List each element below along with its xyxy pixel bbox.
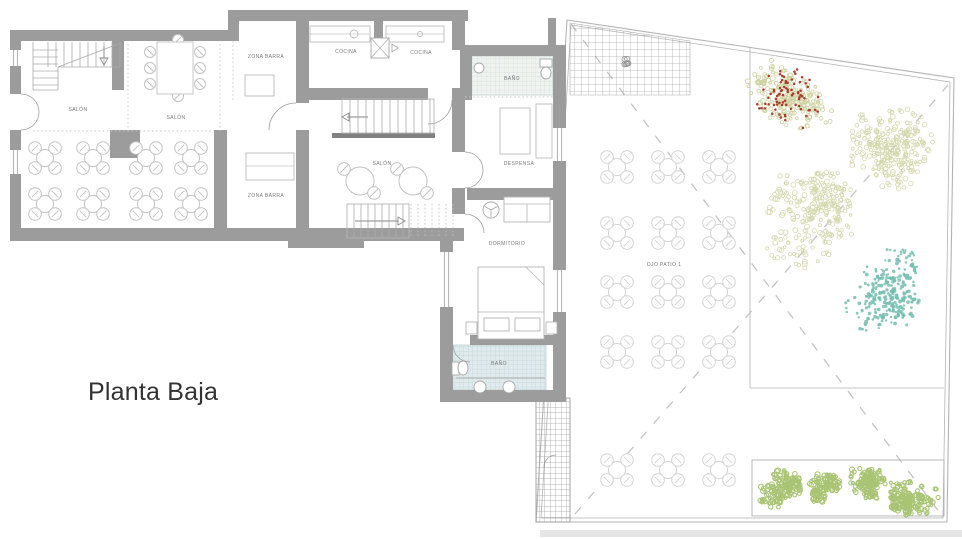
foliage-stroke: [753, 73, 757, 77]
bush-stroke: [923, 500, 926, 503]
teal-foliage-dot: [867, 284, 870, 287]
teal-foliage-dot: [909, 312, 913, 316]
red-blossom-dot: [764, 107, 767, 110]
bush-stroke: [793, 472, 798, 477]
foliage-stroke: [860, 152, 865, 157]
teal-foliage-dot: [871, 300, 873, 302]
red-blossom-dot: [782, 101, 785, 104]
foliage-stroke: [789, 252, 792, 255]
foliage-stroke: [926, 148, 931, 153]
red-blossom-dot: [779, 73, 782, 76]
bush-stroke: [769, 505, 773, 509]
teal-foliage-dot: [897, 255, 900, 258]
teal-foliage-dot: [886, 248, 889, 251]
window-opening: [553, 270, 566, 312]
foliage-stroke: [772, 71, 775, 74]
teal-foliage-dot: [902, 248, 905, 251]
red-blossom-dot: [773, 89, 776, 92]
teal-foliage-dot: [887, 273, 889, 275]
wall: [548, 18, 556, 46]
foliage-stroke: [905, 121, 909, 125]
door-opening: [10, 94, 21, 130]
teal-foliage-dot: [890, 321, 892, 323]
foliage-stroke: [793, 228, 798, 233]
teal-foliage-dot: [898, 308, 901, 311]
red-blossom-dot: [784, 114, 787, 117]
teal-foliage-dot: [887, 281, 889, 283]
patio-table-4-chairs: [652, 276, 685, 309]
foliage-stroke: [797, 246, 801, 250]
foliage-stroke: [784, 123, 788, 127]
window-opening: [553, 128, 566, 161]
teal-foliage-dot: [873, 278, 876, 281]
foliage-stroke: [769, 107, 773, 111]
red-blossom-dot: [785, 104, 788, 107]
red-blossom-dot: [799, 94, 802, 97]
floor-plan-page: SALÓNSALÓNZONA BARRAZONA BARRACOCINACOCI…: [0, 0, 962, 539]
teal-foliage-dot: [896, 276, 898, 278]
foliage-stroke: [806, 209, 809, 212]
teal-foliage-dot: [890, 297, 894, 301]
foliage-stroke: [785, 174, 789, 178]
counter: [500, 108, 530, 154]
teal-foliage-dot: [874, 308, 877, 311]
teal-foliage-dot: [874, 293, 877, 296]
teal-foliage-dot: [883, 283, 886, 286]
bottom-edge-band: [540, 530, 962, 537]
foliage-stroke: [850, 129, 855, 134]
red-blossom-dot: [805, 115, 808, 118]
teal-foliage-dot: [877, 323, 880, 326]
red-blossom-dot: [758, 107, 761, 110]
teal-foliage-dot: [881, 268, 883, 270]
teal-foliage-dot: [917, 299, 921, 303]
red-blossom-dot: [784, 100, 787, 103]
foliage-stroke: [781, 194, 784, 197]
teal-foliage-dot: [896, 297, 899, 300]
teal-foliage-dot: [907, 289, 910, 292]
tree-ring: [766, 170, 854, 270]
foliage-stroke: [808, 181, 811, 184]
red-blossom-dot: [807, 86, 810, 89]
wall: [374, 10, 383, 41]
teal-foliage-dot: [865, 306, 868, 309]
wall: [440, 390, 566, 402]
foliage-stroke: [860, 130, 864, 134]
foliage-stroke: [792, 195, 796, 199]
nightstand: [466, 322, 477, 334]
pillow: [484, 318, 509, 331]
teal-foliage-dot: [885, 319, 887, 321]
teal-foliage-dot: [865, 329, 868, 332]
wall: [460, 45, 566, 56]
teal-foliage-dot: [880, 274, 882, 276]
foliage-stroke: [782, 256, 786, 260]
teal-foliage-dot: [879, 284, 883, 288]
teal-foliage-dot: [912, 298, 916, 302]
foliage-stroke: [821, 251, 826, 256]
teal-foliage-dot: [857, 302, 861, 306]
foliage-stroke: [909, 181, 914, 186]
foliage-stroke: [912, 146, 915, 149]
foliage-stroke: [801, 239, 804, 242]
foliage-stroke: [881, 133, 884, 136]
planter-bush: [889, 480, 940, 517]
foliage-stroke: [804, 181, 808, 185]
red-blossom-dot: [816, 110, 819, 113]
red-blossom-dot: [808, 79, 811, 82]
foliage-stroke: [784, 236, 787, 239]
teal-foliage-dot: [885, 276, 888, 279]
foliage-stroke: [830, 207, 834, 211]
foliage-stroke: [792, 190, 797, 195]
foliage-stroke: [815, 98, 818, 101]
foliage-stroke: [795, 214, 799, 218]
red-blossom-dot: [797, 92, 800, 95]
counter: [245, 75, 274, 96]
pillow: [515, 318, 540, 331]
teal-foliage-dot: [858, 316, 860, 318]
teal-foliage-dot: [874, 268, 877, 271]
patio-table-4-chairs: [601, 276, 634, 309]
foliage-stroke: [896, 121, 900, 125]
teal-foliage-dot: [845, 307, 848, 310]
foliage-stroke: [862, 157, 866, 161]
teal-foliage-dot: [900, 253, 902, 255]
room-label: DESPENSA: [504, 161, 535, 167]
teal-foliage-dot: [891, 280, 894, 283]
room-label: COCINA: [410, 50, 432, 56]
red-blossom-dot: [799, 89, 802, 92]
teal-foliage-dot: [864, 322, 868, 326]
foliage-stroke: [802, 207, 806, 211]
teal-foliage-dot: [885, 295, 888, 298]
red-blossom-dot: [778, 102, 781, 105]
room-label: SALÓN: [167, 114, 186, 121]
foliage-stroke: [816, 260, 819, 263]
counter: [246, 153, 294, 180]
teal-foliage-dot: [900, 250, 903, 253]
bush-stroke: [777, 505, 781, 509]
bush-stroke: [850, 472, 854, 476]
plan-title: Planta Baja: [88, 378, 218, 407]
foliage-stroke: [759, 66, 762, 69]
foliage-stroke: [801, 220, 804, 223]
red-blossom-dot: [798, 96, 801, 99]
foliage-stroke: [779, 237, 783, 241]
teal-foliage-dot: [888, 301, 891, 304]
foliage-stroke: [880, 184, 885, 189]
red-blossom-dot: [781, 75, 784, 78]
teal-foliage-dot: [895, 258, 899, 262]
foliage-stroke: [891, 175, 896, 180]
teal-foliage-dot: [866, 265, 869, 268]
toilet-bowl: [541, 67, 551, 79]
sink: [503, 381, 515, 393]
foliage-stroke: [824, 179, 829, 184]
teal-foliage-dot: [903, 251, 906, 254]
foliage-stroke: [787, 241, 790, 244]
teal-foliage-dot: [867, 318, 870, 321]
foliage-stroke: [773, 257, 776, 260]
teal-foliage-dot: [898, 274, 902, 278]
wall: [10, 228, 295, 241]
foliage-stroke: [791, 183, 796, 188]
teal-foliage-dot: [892, 270, 895, 273]
teal-foliage-dot: [882, 313, 886, 317]
teal-foliage-dot: [905, 261, 907, 263]
teal-foliage-dot: [873, 315, 877, 319]
teal-foliage-dot: [878, 277, 881, 280]
red-blossom-dot: [778, 113, 781, 116]
red-blossom-dot: [780, 90, 783, 93]
teal-foliage-dot: [896, 306, 899, 309]
foliage-stroke: [783, 246, 786, 249]
teal-foliage-dot: [874, 311, 877, 314]
teal-foliage-dot: [877, 296, 880, 299]
foliage-stroke: [836, 172, 839, 175]
foliage-stroke: [830, 109, 834, 113]
teal-foliage-dot: [897, 278, 901, 282]
teal-foliage-dot: [847, 299, 850, 302]
red-blossom-dot: [775, 97, 778, 100]
teal-foliage-dot: [903, 273, 906, 276]
foliage-stroke: [902, 186, 905, 189]
teal-foliage-dot: [903, 283, 906, 286]
foliage-stroke: [812, 229, 816, 233]
room-label: BAÑO: [491, 360, 507, 367]
foliage-stroke: [831, 172, 834, 175]
teal-foliage-dot: [877, 308, 881, 312]
teal-foliage-dot: [886, 310, 888, 312]
wall: [214, 130, 227, 228]
teal-foliage-dot: [878, 327, 880, 329]
teal-foliage-dot: [886, 302, 888, 304]
teal-foliage-dot: [868, 302, 872, 306]
teal-foliage-dot: [844, 301, 847, 304]
foliage-stroke: [766, 247, 769, 250]
door-opening: [428, 88, 452, 100]
foliage-stroke: [785, 198, 789, 202]
foliage-stroke: [793, 219, 796, 222]
patio-table-4-chairs: [703, 454, 736, 487]
foliage-stroke: [770, 76, 775, 81]
red-blossom-dot: [796, 68, 799, 71]
wall: [452, 95, 465, 152]
red-blossom-dot: [767, 103, 770, 106]
teal-foliage-dot: [910, 276, 913, 279]
teal-foliage-dot: [911, 259, 913, 261]
teal-foliage-dot: [885, 268, 888, 271]
foliage-stroke: [795, 204, 799, 208]
teal-foliage-dot: [875, 286, 877, 288]
teal-foliage-dot: [884, 259, 886, 261]
foliage-stroke: [774, 72, 778, 76]
foliage-stroke: [866, 135, 870, 139]
teal-foliage-dot: [846, 311, 848, 313]
teal-foliage-dot: [867, 305, 870, 308]
table-top: [157, 42, 193, 94]
foliage-stroke: [812, 100, 815, 103]
patio-table-4-chairs: [601, 217, 634, 250]
red-blossom-dot: [776, 103, 779, 106]
foliage-stroke: [843, 187, 846, 190]
foliage-stroke: [818, 224, 821, 227]
red-blossom-dot: [805, 82, 808, 85]
patio-table-4-chairs: [601, 454, 634, 487]
room-label: ZONA BARRA: [248, 54, 284, 60]
bush-stroke: [837, 480, 840, 483]
teal-foliage-dot: [904, 268, 907, 271]
planter-bush: [849, 467, 887, 501]
foliage-stroke: [827, 240, 832, 245]
room-label: BAÑO: [504, 75, 520, 82]
foliage-stroke: [855, 151, 859, 155]
foliage-stroke: [907, 167, 910, 170]
teal-foliage-dot: [903, 304, 905, 306]
foliage-stroke: [776, 256, 780, 260]
teal-foliage-dot: [893, 287, 896, 290]
red-blossom-dot: [791, 78, 794, 81]
red-blossom-dot: [778, 93, 781, 96]
sink: [474, 381, 486, 393]
foliage-stroke: [802, 186, 806, 190]
teal-foliage-dot: [866, 295, 868, 297]
teal-foliage-dot: [905, 323, 908, 326]
bush-stroke: [793, 493, 797, 497]
red-blossom-dot: [798, 105, 801, 108]
bush-stroke: [920, 484, 923, 487]
teal-foliage-dot: [888, 259, 891, 262]
teal-foliage-dot: [863, 271, 866, 274]
foliage-stroke: [840, 228, 843, 231]
foliage-stroke: [811, 246, 814, 249]
teal-foliage-dot: [883, 290, 886, 293]
red-blossom-dot: [773, 104, 776, 107]
foliage-stroke: [858, 135, 861, 138]
foliage-stroke: [916, 121, 919, 124]
teal-foliage-dot: [895, 311, 897, 313]
planter-bush: [758, 468, 802, 509]
bush-stroke: [916, 489, 920, 493]
foliage-stroke: [789, 201, 792, 204]
foliage-stroke: [903, 176, 908, 181]
teal-foliage-dot: [892, 309, 895, 312]
teal-foliage-dot: [913, 266, 917, 270]
foliage-stroke: [863, 137, 867, 141]
foliage-stroke: [819, 218, 822, 221]
wall: [228, 10, 468, 21]
foliage-stroke: [768, 116, 772, 120]
red-blossom-dot: [802, 127, 805, 130]
teal-foliage-dot: [864, 303, 867, 306]
foliage-stroke: [823, 191, 826, 194]
foliage-stroke: [915, 170, 919, 174]
tree-ring: [850, 107, 935, 191]
room-label: DORMITORIO: [489, 241, 525, 247]
foliage-stroke: [816, 180, 820, 184]
teal-foliage-dot: [890, 284, 893, 287]
teal-foliage-dot: [858, 327, 861, 330]
teal-foliage-dot: [902, 291, 905, 294]
teal-foliage-dot: [885, 288, 888, 291]
foliage-stroke: [861, 165, 866, 170]
foliage-stroke: [922, 122, 927, 127]
teal-foliage-dot: [871, 288, 874, 291]
foliage-stroke: [801, 245, 805, 249]
teal-foliage-dot: [875, 282, 878, 285]
bush-stroke: [936, 495, 940, 499]
wall: [460, 56, 472, 100]
window-opening: [10, 150, 21, 174]
red-blossom-dot: [756, 103, 759, 106]
tree-dots: [844, 248, 920, 332]
patio-table-4-chairs: [703, 336, 736, 369]
teal-foliage-dot: [868, 312, 872, 316]
teal-foliage-dot: [875, 288, 877, 290]
red-blossom-dot: [799, 81, 802, 84]
patio-table-4-chairs: [652, 217, 685, 250]
patio-table-4-chairs: [601, 336, 634, 369]
nightstand: [546, 322, 557, 334]
teal-foliage-dot: [914, 269, 917, 272]
foliage-stroke: [896, 186, 901, 191]
teal-foliage-dot: [899, 305, 903, 309]
red-blossom-dot: [760, 107, 763, 110]
foliage-stroke: [864, 145, 869, 150]
red-blossom-dot: [785, 80, 788, 83]
teal-foliage-dot: [891, 277, 894, 280]
foliage-stroke: [789, 117, 792, 120]
red-blossom-dot: [782, 94, 785, 97]
teal-foliage-dot: [894, 279, 896, 281]
teal-foliage-dot: [898, 267, 901, 270]
teal-foliage-dot: [890, 304, 894, 308]
foliage-stroke: [757, 89, 761, 93]
teal-foliage-dot: [861, 309, 864, 312]
patio-table-4-chairs: [601, 151, 634, 184]
foliage-stroke: [803, 236, 806, 239]
foliage-stroke: [849, 232, 853, 236]
teal-foliage-dot: [909, 255, 911, 257]
red-blossom-dot: [794, 104, 797, 107]
teal-foliage-dot: [895, 261, 899, 265]
teal-foliage-dot: [900, 287, 902, 289]
teal-foliage-dot: [878, 291, 882, 295]
teal-foliage-dot: [859, 285, 862, 288]
teal-foliage-dot: [902, 296, 905, 299]
foliage-stroke: [918, 160, 921, 163]
foliage-stroke: [779, 66, 783, 70]
patio-table-4-chairs: [703, 217, 736, 250]
foliage-stroke: [778, 174, 783, 179]
foliage-stroke: [869, 148, 872, 151]
teal-foliage-dot: [853, 296, 856, 299]
foliage-stroke: [905, 107, 910, 112]
wall: [553, 56, 566, 402]
red-blossom-dot: [774, 108, 777, 111]
teal-foliage-dot: [871, 282, 874, 285]
teal-foliage-dot: [865, 273, 869, 277]
toilet-bowl: [458, 361, 468, 375]
teal-foliage-dot: [913, 292, 916, 295]
foliage-stroke: [892, 161, 896, 165]
foliage-stroke: [824, 240, 827, 243]
patio-table-4-chairs: [652, 454, 685, 487]
floor-plan-canvas: SALÓNSALÓNZONA BARRAZONA BARRACOCINACOCI…: [0, 0, 962, 539]
red-blossom-dot: [783, 86, 786, 89]
red-blossom-dot: [767, 97, 770, 100]
